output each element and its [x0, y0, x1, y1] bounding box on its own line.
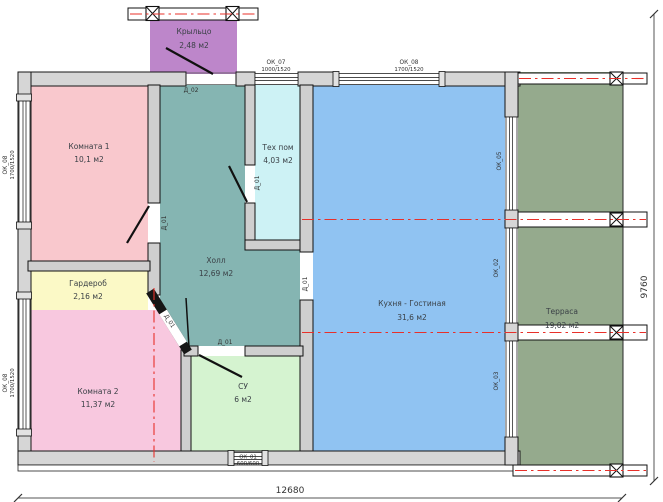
- entry-opening-lines: [186, 73, 236, 85]
- room-area: 11,37 м2: [81, 400, 116, 409]
- room-area: 2,16 м2: [73, 292, 103, 301]
- window-label: ОК_07: [267, 60, 286, 66]
- label-ok05: ОК_05: [497, 151, 503, 170]
- window-size: 1700/1520: [10, 150, 16, 180]
- room-name: Крыльцо: [177, 27, 212, 36]
- label-ok08-left-upper: ОК_08 1700/1520: [3, 150, 16, 180]
- room-room2[interactable]: [31, 310, 181, 451]
- window-jamb: [439, 72, 445, 87]
- window-ok02[interactable]: [506, 228, 517, 323]
- window-ok08-left-lower[interactable]: [17, 292, 32, 436]
- label-d01-room1: Д_01: [162, 215, 168, 230]
- window-label: ОК_08: [400, 60, 419, 66]
- window-ok07[interactable]: [255, 74, 298, 85]
- window-jamb: [333, 72, 339, 87]
- window-size: 1000/1520: [261, 67, 291, 73]
- room-name: СУ: [238, 382, 248, 391]
- floor-plan-drawing: 12680 9760 Крыльцо 2,48 м2 Комната 1 10,…: [0, 0, 663, 502]
- room-name: Гардероб: [69, 279, 107, 288]
- room-name: Тех пом: [261, 143, 293, 152]
- label-ok03: ОК_03: [494, 371, 500, 390]
- window-frame: [19, 100, 30, 223]
- wall-hall-room1-upper[interactable]: [148, 85, 160, 203]
- label-ok07: ОК_07 1000/1520: [261, 60, 291, 73]
- window-ok03[interactable]: [506, 341, 517, 437]
- label-d01-tech: Д_01: [255, 175, 261, 190]
- wall-right-top[interactable]: [505, 72, 518, 117]
- room-name: Комната 2: [77, 387, 118, 396]
- label-ok02: ОК_02: [494, 258, 500, 277]
- window-size: 1700/1520: [394, 67, 424, 73]
- wall-bottom-band: [18, 465, 520, 471]
- window-size: 600/600: [237, 461, 260, 467]
- floor-plan-canvas: 12680 9760 Крыльцо 2,48 м2 Комната 1 10,…: [0, 0, 663, 502]
- wall-right-bottom[interactable]: [505, 437, 518, 465]
- label-ok08-left-lower: ОК_08 1700/1520: [3, 368, 16, 398]
- window-ok07-frame: [255, 74, 298, 85]
- window-jamb: [17, 94, 32, 101]
- dimension-width-label: 12680: [276, 486, 305, 496]
- wall-top-left[interactable]: [18, 72, 186, 86]
- label-d01-kitchen: Д_01: [303, 276, 309, 291]
- wall-bottom[interactable]: [18, 451, 520, 465]
- room-wardrobe[interactable]: [31, 271, 148, 310]
- window-jamb: [17, 292, 32, 299]
- window-frame: [19, 298, 30, 430]
- room-area: 6 м2: [234, 395, 252, 404]
- room-area: 2,48 м2: [179, 41, 209, 50]
- room-area: 4,03 м2: [263, 156, 293, 165]
- room-area: 31,6 м2: [397, 313, 427, 322]
- window-jamb: [228, 451, 234, 466]
- window-frame: [506, 341, 517, 437]
- room-kitchen[interactable]: [313, 85, 505, 451]
- label-ok08-top: ОК_08 1700/1520: [394, 60, 424, 73]
- room-terrace[interactable]: [518, 72, 623, 465]
- dimension-bottom: 12680: [14, 486, 626, 502]
- wall-room1-wardrobe[interactable]: [28, 261, 150, 271]
- window-label: ОК_08: [3, 155, 9, 174]
- wall-tech-left-upper[interactable]: [245, 85, 255, 165]
- dimension-height-label: 9760: [640, 275, 650, 298]
- room-name: Холл: [206, 256, 226, 265]
- label-ok01-bottom: ОК_01 600/600: [237, 455, 260, 468]
- room-name: Терраса: [545, 307, 578, 316]
- label-d01-bathroom: Д_01: [218, 340, 233, 346]
- label-d02-entry: Д_02: [184, 88, 199, 94]
- room-area: 10,1 м2: [74, 155, 104, 164]
- wall-bathroom-top-right[interactable]: [245, 346, 303, 356]
- wall-top-post[interactable]: [298, 72, 338, 86]
- window-ok08-top-frame: [338, 74, 440, 85]
- wall-top-mid[interactable]: [236, 72, 255, 86]
- room-name: Кухня - Гостиная: [378, 299, 446, 308]
- window-jamb: [262, 451, 268, 466]
- room-room1[interactable]: [31, 85, 148, 261]
- window-ok05[interactable]: [506, 117, 517, 210]
- window-frame: [506, 228, 517, 323]
- room-area: 19,02 м2: [545, 321, 580, 330]
- window-frame: [506, 117, 517, 210]
- wall-hall-kitchen-upper[interactable]: [300, 85, 313, 252]
- room-area: 12,69 м2: [199, 269, 234, 278]
- window-ok08-left-upper[interactable]: [17, 94, 32, 229]
- room-name: Комната 1: [68, 142, 109, 151]
- window-ok08-top[interactable]: [333, 72, 445, 87]
- wall-hall-kitchen-lower[interactable]: [300, 300, 313, 451]
- window-jamb: [17, 222, 32, 229]
- wall-room2-bathroom[interactable]: [181, 350, 191, 451]
- window-label: ОК_01: [239, 455, 257, 461]
- window-size: 1700/1520: [10, 368, 16, 398]
- window-label: ОК_08: [3, 373, 9, 392]
- window-jamb: [17, 429, 32, 436]
